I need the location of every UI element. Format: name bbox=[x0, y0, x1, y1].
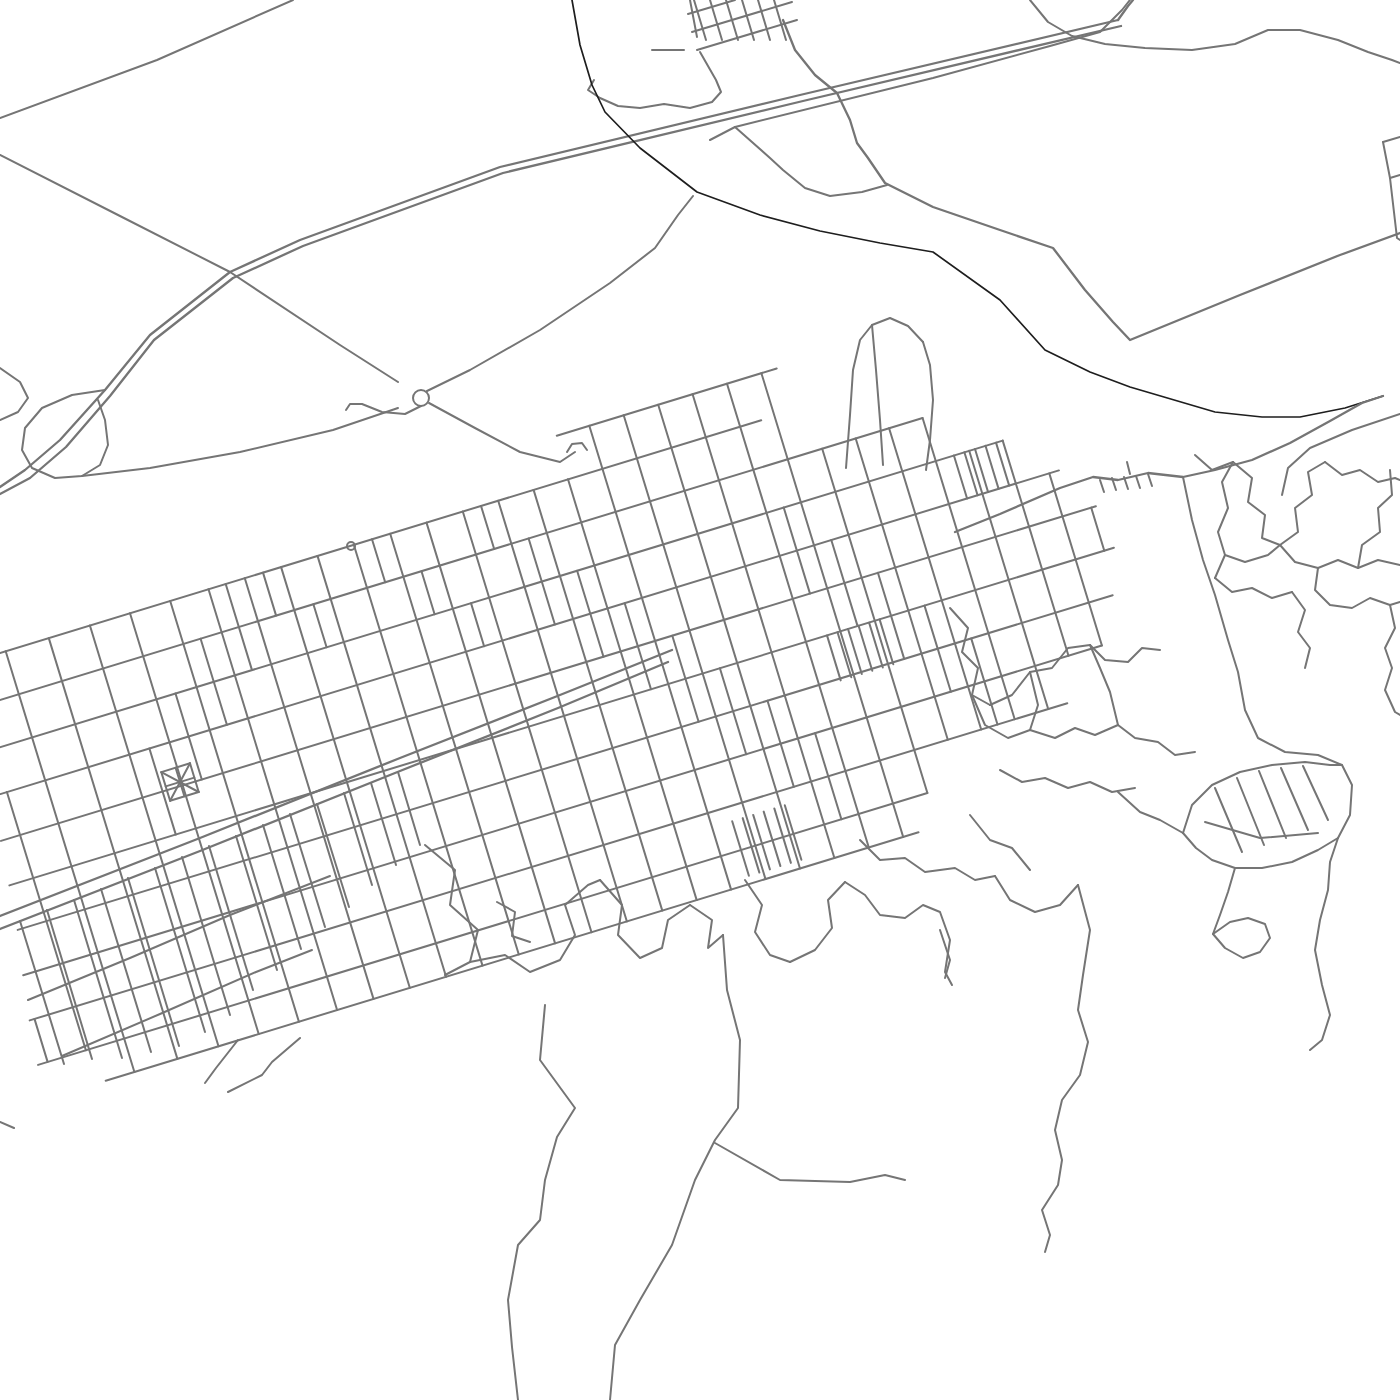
organic-s7 bbox=[790, 882, 845, 962]
grid-street-29 bbox=[1003, 441, 1069, 656]
heart-loop bbox=[1213, 918, 1270, 958]
grid-avenue-2 bbox=[0, 418, 923, 700]
grid-comb-0-3 bbox=[859, 626, 873, 671]
transition-t5 bbox=[1118, 725, 1195, 755]
grid-partial-street-4 bbox=[263, 573, 276, 616]
edge-quad-a bbox=[1383, 137, 1400, 142]
grid-avenue-4 bbox=[0, 470, 1059, 794]
cells-c1 bbox=[1233, 462, 1280, 545]
south-tail-2 bbox=[228, 1038, 300, 1092]
south-tail-1 bbox=[205, 1040, 238, 1083]
shoreline bbox=[1030, 0, 1400, 63]
grid-comb-0-4 bbox=[869, 623, 883, 668]
road-feature-layer bbox=[0, 0, 1400, 1400]
south-comb-2 bbox=[47, 910, 92, 1059]
interchange-arc bbox=[0, 368, 28, 420]
cells-c3 bbox=[1325, 462, 1400, 482]
grid-partial-street-9 bbox=[481, 506, 494, 549]
grid-partial-street-5 bbox=[313, 604, 326, 647]
enclave-comb-1 bbox=[1215, 788, 1242, 852]
cells-c8 bbox=[1292, 592, 1310, 668]
stream-branch bbox=[715, 1143, 905, 1182]
rail-station bbox=[1383, 384, 1400, 401]
village-ave-3 bbox=[697, 20, 797, 50]
grid-street-26 bbox=[889, 428, 981, 729]
grid-comb-2-3 bbox=[986, 446, 999, 489]
grid-partial-street-7 bbox=[422, 571, 435, 614]
stream-left bbox=[508, 1005, 575, 1400]
sw-connector bbox=[82, 408, 398, 476]
enclave-comb-4 bbox=[1281, 768, 1308, 830]
stream-right bbox=[610, 935, 740, 1400]
grid-street-31 bbox=[1091, 508, 1104, 551]
south-spine-2 bbox=[62, 950, 312, 1056]
organic-s10 bbox=[995, 876, 1078, 912]
south-spine-1 bbox=[28, 876, 330, 1000]
roundabout bbox=[413, 390, 429, 406]
cells-c5 bbox=[1315, 568, 1400, 608]
cells-c6 bbox=[1215, 462, 1233, 578]
south-comb-13 bbox=[344, 793, 372, 885]
organic-s9 bbox=[860, 840, 995, 880]
village-descender bbox=[588, 52, 721, 108]
organic-s4 bbox=[690, 905, 723, 948]
organic-s8 bbox=[845, 882, 952, 985]
grid-partial-street-8 bbox=[471, 603, 484, 646]
mid-stream bbox=[1042, 885, 1090, 1252]
east-road-tick-5 bbox=[1148, 474, 1152, 486]
blob-road bbox=[735, 127, 887, 196]
grid-comb-0-2 bbox=[848, 629, 862, 674]
rail-line bbox=[572, 0, 1383, 417]
roundabout-e-spoke bbox=[429, 403, 575, 462]
peninsula-right bbox=[923, 342, 933, 470]
enclave-comb-3 bbox=[1259, 771, 1286, 838]
wadi bbox=[1183, 477, 1352, 1050]
east-road-tick-1 bbox=[1100, 480, 1104, 492]
south-comb-5 bbox=[128, 878, 179, 1046]
grid-partial-street-0 bbox=[149, 749, 175, 835]
cells-c4 bbox=[1280, 545, 1400, 568]
transition-t7 bbox=[1030, 672, 1038, 730]
grid-street-19 bbox=[624, 415, 766, 879]
village-ave-2 bbox=[692, 2, 792, 32]
peninsula-inner bbox=[872, 325, 883, 465]
motorway-b bbox=[0, 26, 1121, 494]
east-road-tick-4 bbox=[1136, 476, 1140, 488]
grid-comb-2-2 bbox=[975, 449, 988, 492]
grid-street-21 bbox=[693, 394, 835, 858]
south-comb-7 bbox=[182, 857, 230, 1015]
east-road bbox=[955, 396, 1383, 532]
enclave-cross bbox=[1205, 822, 1318, 838]
organic-s3 bbox=[600, 880, 690, 958]
motorway-exit bbox=[1118, 0, 1133, 20]
grid-comb-0-1 bbox=[838, 632, 852, 677]
grid-avenue-3 bbox=[0, 441, 1003, 748]
cells-c10 bbox=[1225, 545, 1280, 562]
organic-s11 bbox=[970, 815, 1030, 870]
south-comb-14 bbox=[371, 783, 396, 865]
road-map-svg bbox=[0, 0, 1400, 1400]
organic-s6 bbox=[745, 880, 790, 962]
cells-c7 bbox=[1215, 578, 1292, 598]
edge-tick bbox=[0, 1122, 14, 1128]
village-street-5 bbox=[758, 0, 770, 40]
grid-comb-0-0 bbox=[827, 635, 841, 680]
enclave-comb-5 bbox=[1303, 766, 1328, 820]
nw-road-a bbox=[0, 0, 293, 118]
grid-street-18 bbox=[589, 426, 731, 890]
grid-partial-street-6 bbox=[372, 539, 385, 582]
motorway-a bbox=[0, 20, 1118, 487]
south-comb-10 bbox=[263, 825, 301, 949]
map-stage bbox=[0, 0, 1400, 1400]
enclave-south-link bbox=[1213, 868, 1235, 934]
cells-c9 bbox=[1358, 470, 1392, 568]
nw-road-b bbox=[0, 155, 398, 382]
roundabout-ne-spoke bbox=[427, 196, 693, 391]
v-road bbox=[783, 20, 1400, 340]
grid-street-0 bbox=[35, 1019, 48, 1062]
edge-quad-b bbox=[1383, 142, 1400, 240]
transition-t3 bbox=[1090, 645, 1160, 662]
frontage-road bbox=[710, 0, 1130, 140]
transition-t8 bbox=[1090, 645, 1118, 725]
grid-avenue-1 bbox=[0, 420, 761, 653]
grid-avenue-11 bbox=[106, 832, 919, 1081]
transition-t6 bbox=[1000, 770, 1135, 792]
east-gray-link bbox=[1282, 414, 1400, 495]
organic-s5 bbox=[497, 902, 530, 942]
edge-quad-c bbox=[1390, 175, 1400, 178]
grid-street-25 bbox=[856, 439, 948, 740]
grid-street-20 bbox=[658, 405, 800, 869]
grid-comb-2-0 bbox=[954, 456, 967, 499]
east-road-tick-6 bbox=[1127, 462, 1130, 474]
south-comb-12 bbox=[317, 804, 349, 907]
cells-c12 bbox=[1385, 605, 1400, 715]
enclave-west-link bbox=[1118, 792, 1183, 833]
hat-bump bbox=[567, 443, 587, 452]
roundabout-s-stub bbox=[346, 404, 421, 414]
grid-comb-2-4 bbox=[996, 443, 1009, 486]
